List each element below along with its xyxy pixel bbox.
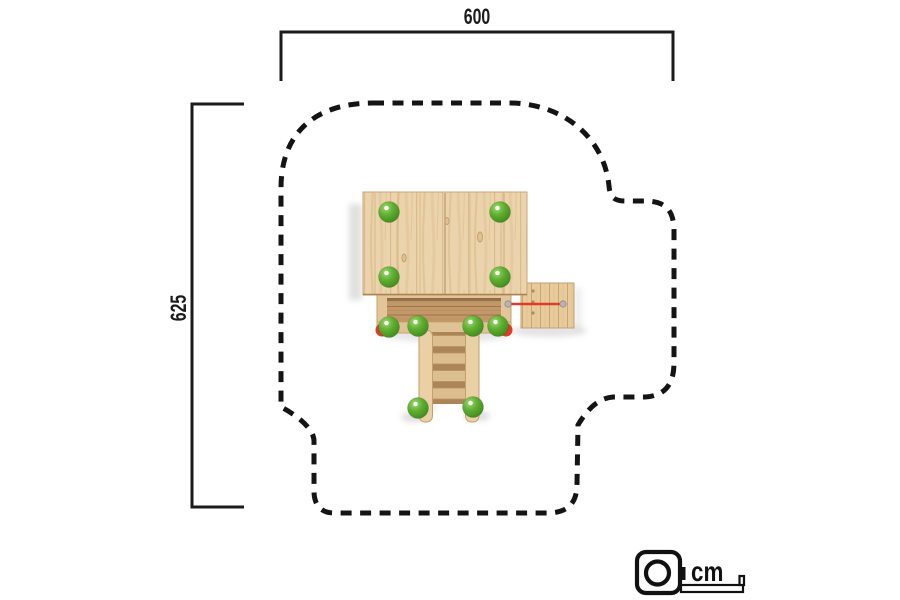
height-dimension-line <box>192 104 244 507</box>
post-cap <box>379 202 400 223</box>
post-cap <box>408 316 429 337</box>
width-dimension-label: 600 <box>464 6 490 28</box>
width-dimension-line <box>281 32 673 81</box>
unit-label: cm <box>691 558 723 586</box>
height-dimension-label: 625 <box>168 295 190 321</box>
post-cap <box>463 316 484 337</box>
post-cap <box>379 267 400 288</box>
post-cap <box>490 202 511 223</box>
post-cap <box>490 267 511 288</box>
dimension-diagram: 600 625 cm <box>0 0 900 600</box>
post-cap <box>463 397 484 418</box>
post-cap <box>488 316 509 337</box>
post-cap <box>379 317 400 338</box>
post-cap <box>408 398 429 419</box>
diagram-graphics <box>0 0 900 600</box>
